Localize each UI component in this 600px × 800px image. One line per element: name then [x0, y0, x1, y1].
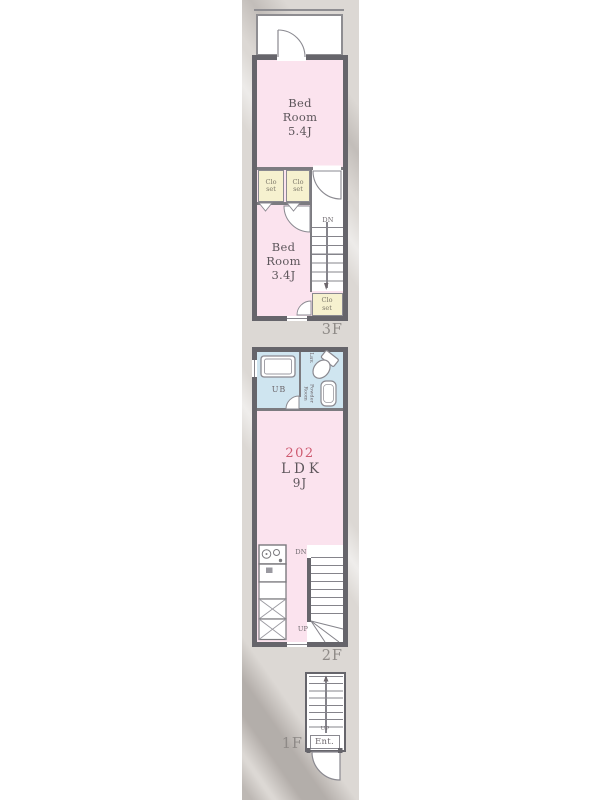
balcony: [256, 14, 343, 56]
kitchen-counter-label: Coun ter: [259, 583, 286, 597]
staircase-rail-3f: [326, 222, 327, 288]
bedroom-3-4j-label: Bed Room 3.4J: [257, 240, 310, 282]
floor-label-1f: 1F: [253, 736, 303, 752]
lavatory-label: Lav.: [306, 349, 314, 367]
unit-bath-label: UB: [262, 385, 296, 394]
floor-label-2f: 2F: [293, 648, 343, 664]
floor-label-3f: 3F: [293, 322, 343, 338]
closet-bottom-3f: Clo set: [312, 293, 343, 316]
stairs-down-label-3f: DN: [315, 216, 341, 224]
entrance-label-box: Ent.: [310, 735, 340, 749]
stairs-up-label-2f: UP: [293, 625, 313, 633]
staircase-2f: [311, 557, 343, 621]
powder-room-label: Powder Room: [303, 381, 314, 407]
wall-bath-bottom: [257, 408, 343, 411]
wall-closet-bottom-3f: [257, 202, 311, 205]
stairs-up-label-1f: UP: [312, 726, 338, 732]
room-size-label: 9J: [257, 476, 343, 490]
unit-number: 202: [257, 446, 343, 461]
closet-left-3f: Clo set: [258, 170, 284, 202]
wall-bath-divider: [299, 352, 302, 397]
floorplan-canvas: Bed Room 5.4J Clo set Clo set Bed Room 3…: [0, 0, 600, 800]
stairs-down-label-2f: DN: [291, 548, 311, 556]
bedroom-5-4j-label: Bed Room 5.4J: [257, 96, 343, 138]
window-3f: [287, 316, 307, 322]
window-2f-left: [252, 360, 258, 377]
closet-right-3f: Clo set: [286, 170, 310, 202]
room-type-label: LDK: [257, 461, 343, 477]
window-2f: [287, 642, 307, 648]
roof-edge-line: [254, 9, 344, 11]
staircase-rail-1f: [325, 676, 326, 733]
